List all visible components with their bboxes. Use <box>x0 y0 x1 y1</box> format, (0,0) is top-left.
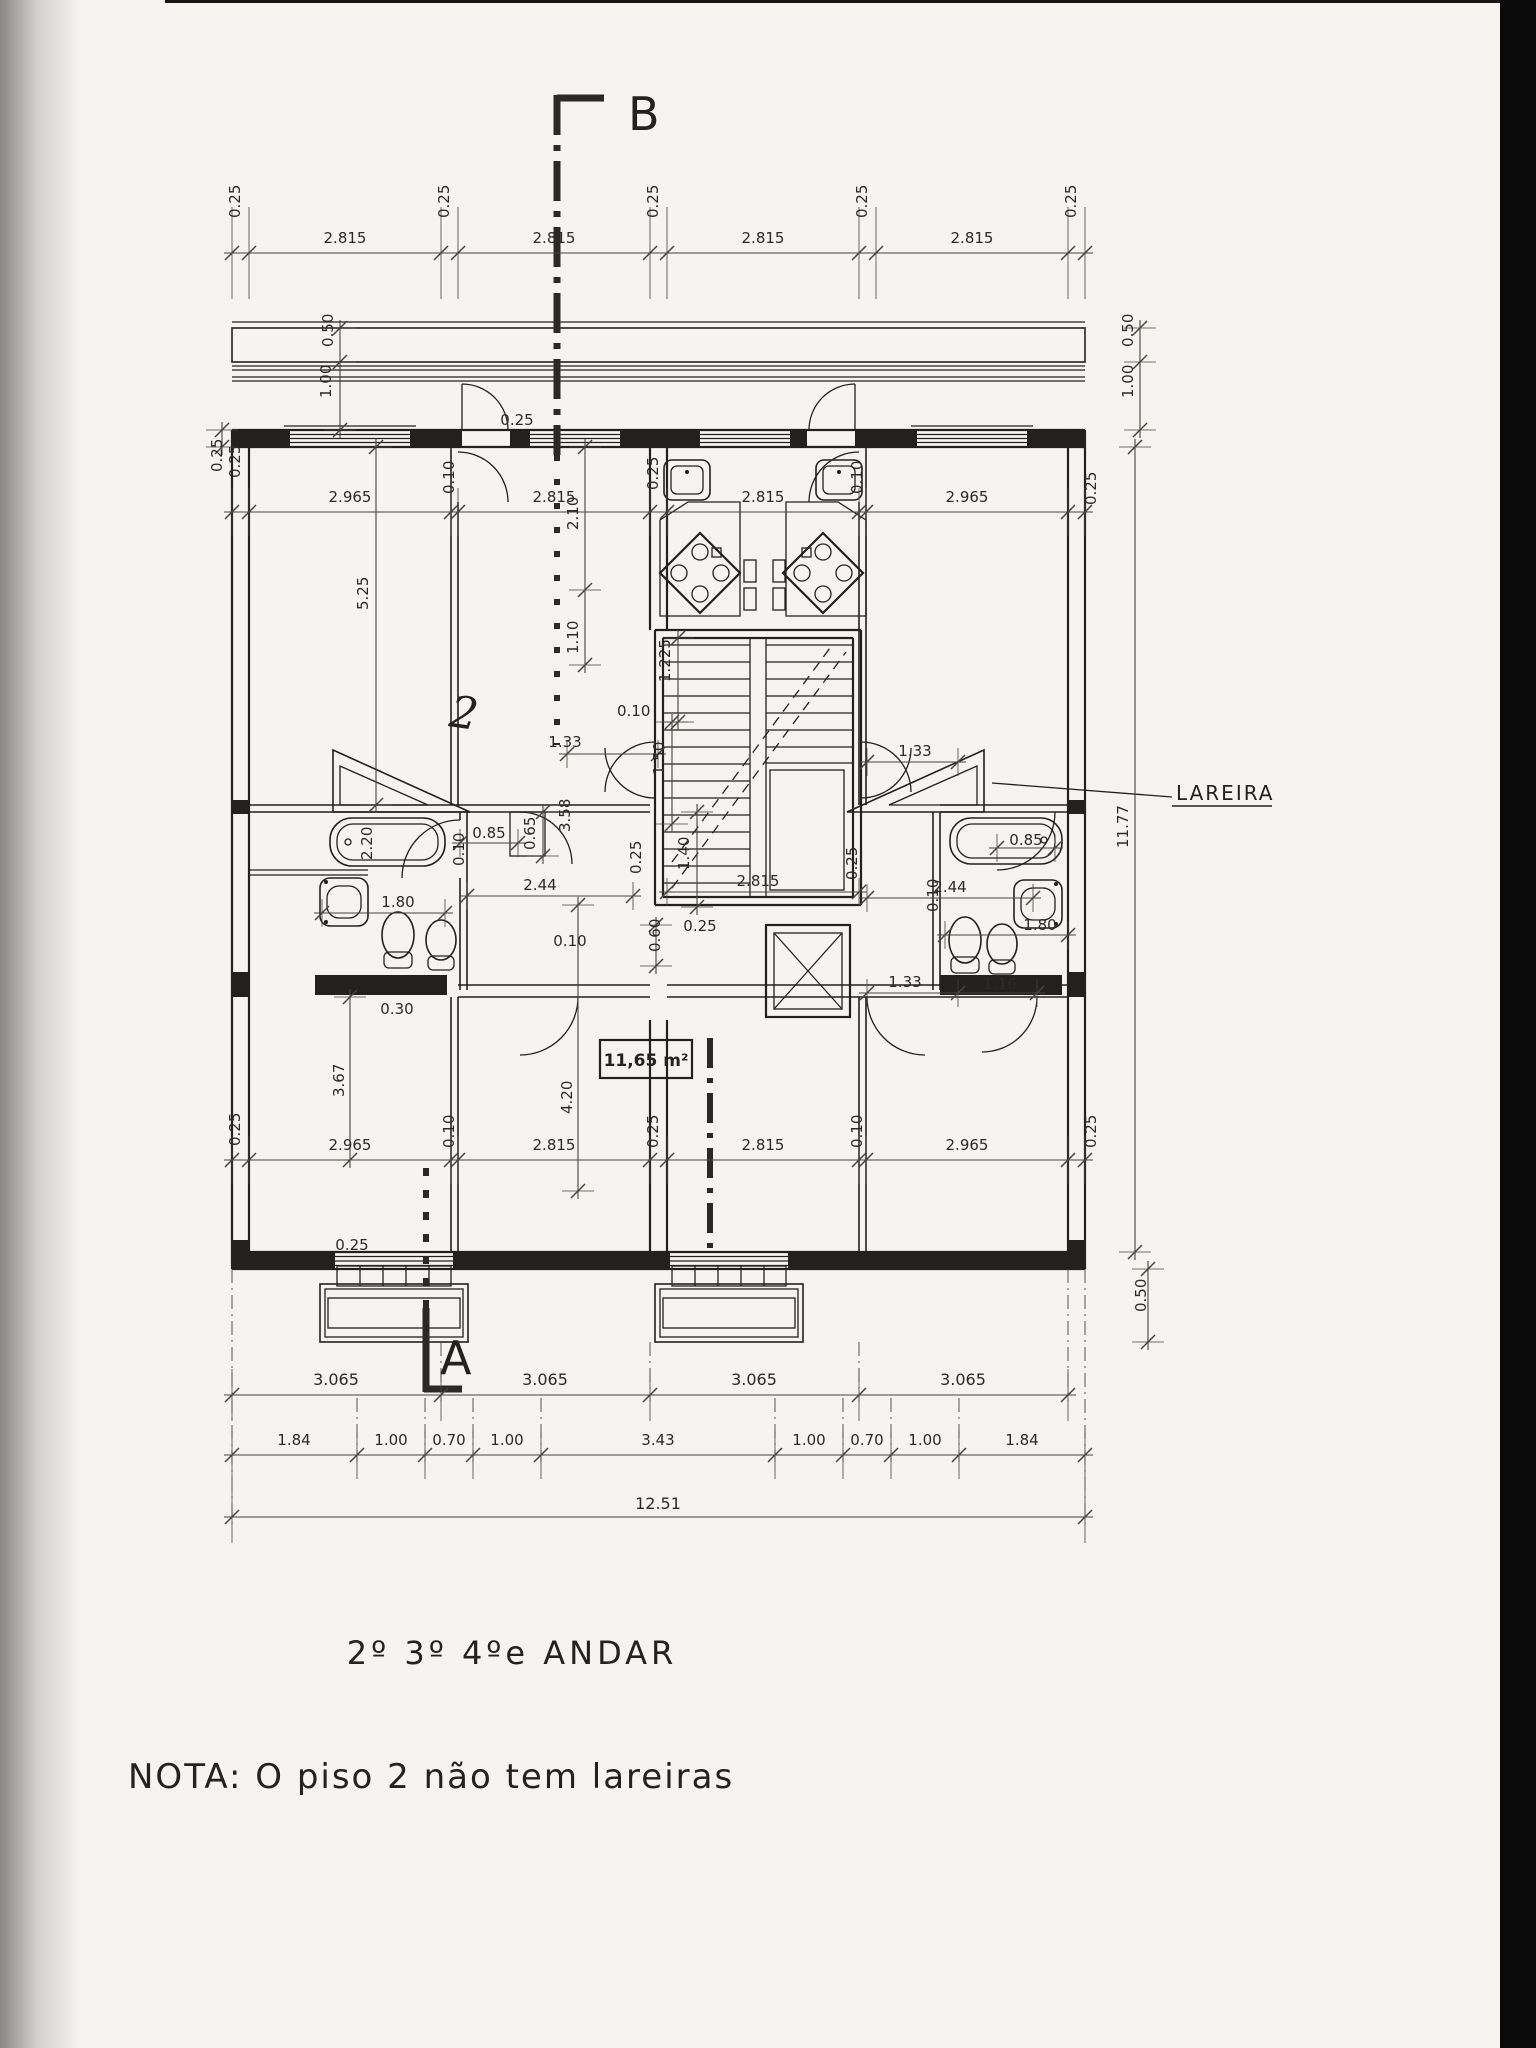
drawing-title: 2º 3º 4ºe ANDAR <box>347 1634 678 1672</box>
dim: 2.965 <box>329 1136 372 1154</box>
dim: 2.815 <box>324 229 367 247</box>
dim: 2.815 <box>951 229 994 247</box>
dim: 1.50 <box>650 742 668 775</box>
drawing-note: NOTA: O piso 2 não tem lareiras <box>128 1757 734 1797</box>
dim: 3.065 <box>731 1370 777 1389</box>
dim: 0.85 <box>472 824 505 842</box>
dim: 0.25 <box>226 445 244 478</box>
dim: 0.25 <box>644 185 662 218</box>
dim: 3.065 <box>522 1370 568 1389</box>
bath-wall-left <box>315 975 447 995</box>
dim: 1.33 <box>888 973 921 991</box>
dim: 0.25 <box>644 1115 662 1148</box>
lareira-label: LAREIRA <box>1176 781 1274 805</box>
dim: 0.70 <box>432 1431 465 1449</box>
dim: 0.25 <box>335 1236 368 1254</box>
dim: 1.16 <box>983 975 1016 993</box>
dim: 0.25 <box>683 917 716 935</box>
dim: 2.815 <box>742 1136 785 1154</box>
dim: 1.00 <box>908 1431 941 1449</box>
dim: 2.815 <box>737 872 780 890</box>
dim: 0.85 <box>1009 831 1042 849</box>
room-area-value: 11,65 m² <box>604 1051 689 1071</box>
dim-total-height: 11.77 <box>1114 805 1132 848</box>
dim: 3.58 <box>556 799 574 832</box>
paper-background <box>0 0 1536 2048</box>
dim: 0.25 <box>226 1113 244 1146</box>
dim: 0.10 <box>848 1115 866 1148</box>
dim: 2.965 <box>946 488 989 506</box>
dim: 0.65 <box>521 817 539 850</box>
dim: 0.10 <box>440 461 458 494</box>
dim: 1.10 <box>564 621 582 654</box>
dim: 1.00 <box>792 1431 825 1449</box>
dim: 2.20 <box>358 827 376 860</box>
dim: 2.815 <box>533 1136 576 1154</box>
scan-top-line <box>165 0 1500 3</box>
dim: 0.30 <box>380 1000 413 1018</box>
dim: 2.815 <box>533 229 576 247</box>
dim: 0.25 <box>226 185 244 218</box>
dim: 1.33 <box>898 742 931 760</box>
dim: 1.225 <box>656 639 674 682</box>
scan-edge-right-bar <box>1500 0 1536 2048</box>
dim: 0.25 <box>853 185 871 218</box>
dim: 5.25 <box>354 577 372 610</box>
dim: 0.10 <box>450 833 468 866</box>
dim: 2.815 <box>742 488 785 506</box>
dim: 0.25 <box>644 457 662 490</box>
dim: 0.10 <box>553 932 586 950</box>
section-a-letter: A <box>440 1331 472 1385</box>
dim: 0.10 <box>440 1115 458 1148</box>
scan-edge-left <box>0 0 80 2048</box>
section-b-letter: B <box>628 87 660 141</box>
dim: 3.43 <box>641 1431 674 1449</box>
dim: 0.25 <box>500 411 533 429</box>
dim: 0.25 <box>1082 1115 1100 1148</box>
dim: 0.25 <box>1062 185 1080 218</box>
dim: 0.25 <box>627 841 645 874</box>
dim: 1.84 <box>1005 1431 1038 1449</box>
dim: 1.40 <box>675 837 693 870</box>
dim: 2.815 <box>742 229 785 247</box>
dim: 2.10 <box>564 497 582 530</box>
floor-plan-drawing: 11,65 m² 0.25 2.815 0.25 2.815 0.25 2.81… <box>0 0 1536 2048</box>
dim: 1.33 <box>548 733 581 751</box>
dim: 0.10 <box>617 702 650 720</box>
dim: 0.70 <box>850 1431 883 1449</box>
dim: 1.80 <box>381 893 414 911</box>
dim: 4.20 <box>558 1081 576 1114</box>
dim: 0.50 <box>1132 1279 1150 1312</box>
dim: 0.25 <box>1082 472 1100 505</box>
dim: 1.00 <box>374 1431 407 1449</box>
dim: 0.50 <box>1119 314 1137 347</box>
dim-total-width: 12.51 <box>635 1494 681 1513</box>
dim: 2.44 <box>523 876 556 894</box>
dim: 2.965 <box>946 1136 989 1154</box>
dim: 1.00 <box>1119 365 1137 398</box>
dim: 0.50 <box>319 314 337 347</box>
dim: 1.84 <box>277 1431 310 1449</box>
dim: 0.25 <box>208 439 226 472</box>
dim: 3.67 <box>330 1064 348 1097</box>
dim: 3.065 <box>313 1370 359 1389</box>
dim: 0.10 <box>848 461 866 494</box>
dim: 0.60 <box>646 919 664 952</box>
dim: 2.965 <box>329 488 372 506</box>
dim: 0.25 <box>435 185 453 218</box>
dim: 3.065 <box>940 1370 986 1389</box>
dim: 1.80 <box>1023 916 1056 934</box>
dim: 1.00 <box>317 365 335 398</box>
scanned-floorplan-page: 11,65 m² 0.25 2.815 0.25 2.815 0.25 2.81… <box>0 0 1536 2048</box>
dim: 0.10 <box>924 879 942 912</box>
dim: 1.00 <box>490 1431 523 1449</box>
dim: 0.25 <box>843 847 861 880</box>
